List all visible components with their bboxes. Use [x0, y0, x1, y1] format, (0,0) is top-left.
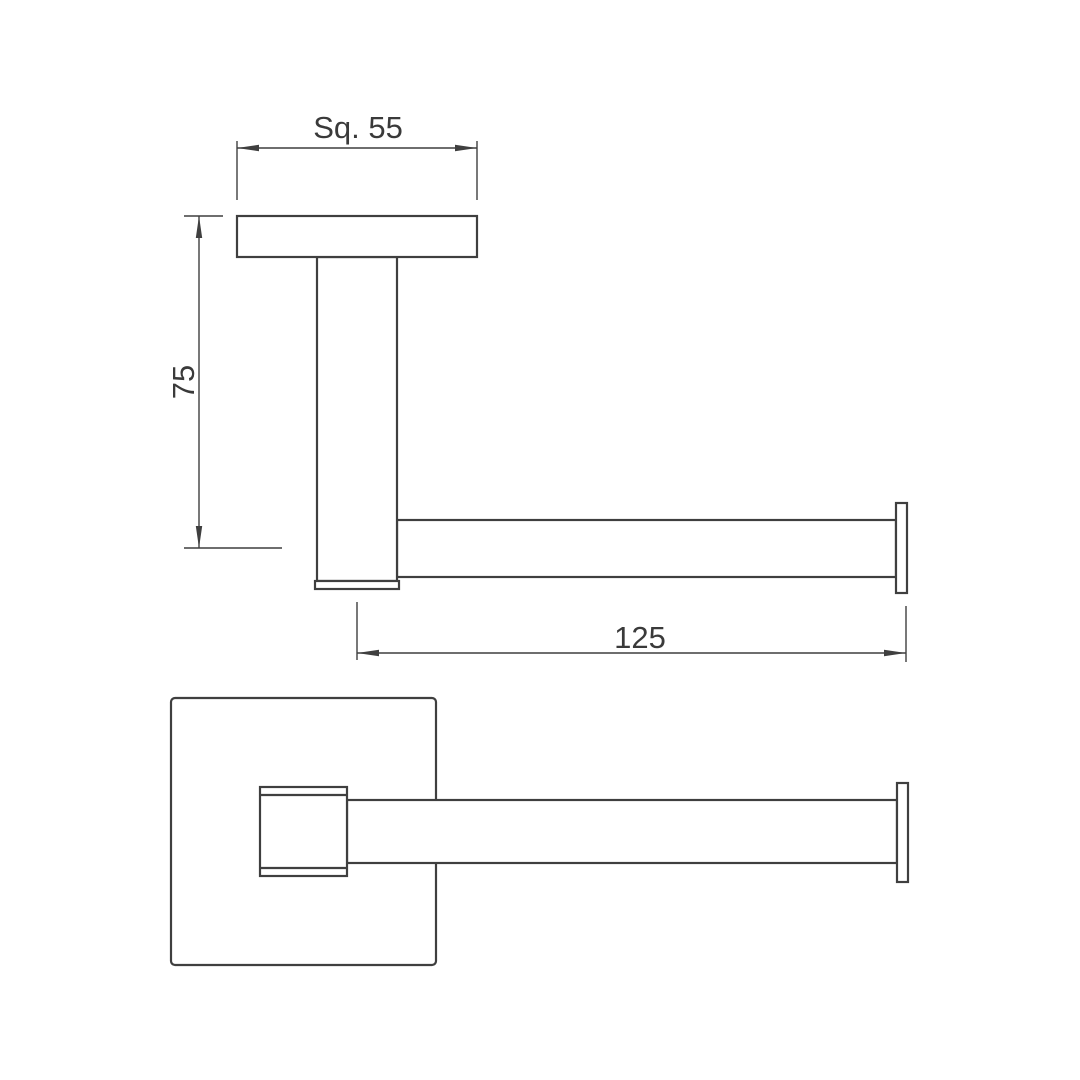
end-cap-side — [896, 503, 907, 593]
roll-bar-side — [397, 520, 896, 577]
end-cap-plan — [897, 783, 908, 882]
post-base-cap-side — [315, 581, 399, 589]
dimension-projection-height: 75 — [166, 216, 282, 548]
roll-bar-plan — [347, 800, 897, 863]
dimension-label-125: 125 — [614, 620, 666, 655]
mounting-post-side — [317, 257, 397, 581]
dimension-plate-square: Sq. 55 — [237, 110, 477, 200]
wall-plate-side — [237, 216, 477, 257]
dimension-bar-length: 125 — [357, 602, 906, 662]
drawing-canvas: Sq. 55 75 125 — [0, 0, 1080, 1080]
dimension-label-75: 75 — [166, 365, 201, 399]
technical-dimension-drawing: Sq. 55 75 125 — [0, 0, 1080, 1080]
dimension-label-sq55: Sq. 55 — [313, 110, 403, 145]
side-elevation-view — [237, 216, 907, 593]
mounting-post-plan — [260, 787, 347, 876]
plan-view — [171, 698, 908, 965]
